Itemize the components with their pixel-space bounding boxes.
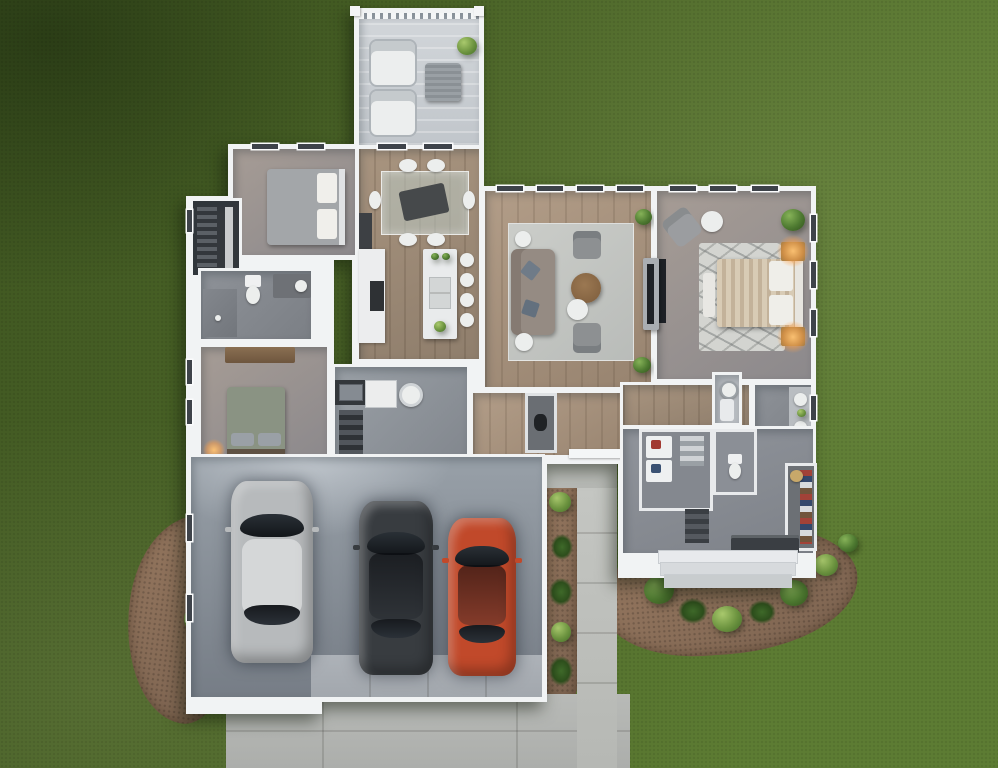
bar-stool [460,253,474,267]
potted-plant [457,37,477,55]
room-water-heater [712,372,742,426]
water-heater-body [720,399,734,421]
lounge-chair [369,39,417,87]
bar-stool [460,293,474,307]
car-windshield [367,532,425,555]
side-table [515,231,531,247]
kitchen-island [423,249,457,339]
car-roof [369,553,422,619]
slab-garage-stub [186,698,322,714]
island-plant [434,321,446,332]
bed-pillows [317,173,337,203]
range-counter [359,249,385,343]
room-patio [356,10,482,148]
tv-screen [647,264,654,324]
room-living [482,188,654,390]
window [187,400,192,424]
island-sink [429,277,451,309]
island-plant [431,253,439,260]
patio-post [350,6,360,16]
bed-pillows [317,209,337,239]
lamp-glow [777,321,809,353]
car-roof [458,565,507,625]
laundry-shelf [680,436,704,466]
window [187,210,192,232]
storage-basket [790,470,803,482]
car-windshield [455,546,508,567]
window [252,144,278,149]
dresser [225,347,295,363]
nesting-table [567,299,588,320]
floor-plan-render [0,0,998,768]
window [424,144,452,149]
dining-chair [369,191,381,209]
dining-chair [427,159,445,172]
hall-closet [525,393,557,453]
car-windshield [240,514,304,538]
room-bedroom-3 [198,344,330,460]
room-closet-2 [190,198,242,278]
vent-fan [399,383,423,407]
window [752,186,778,191]
armchair [573,231,601,259]
throw-pillow [520,260,541,281]
bed [227,387,285,455]
utility-sink [339,384,363,401]
laundry-basket-blue [651,464,661,473]
window [187,595,192,621]
potted-plant [635,209,652,225]
window [537,186,563,191]
bar-stool [460,313,474,327]
window [378,144,406,149]
laundry-basket-red [651,440,661,449]
cooktop [370,281,384,311]
armchair [573,323,601,353]
linen-shelves [339,410,363,456]
house [0,0,998,768]
car-red-sedan [448,518,516,676]
toilet-bowl [246,286,260,304]
window [811,310,816,336]
room-bedroom-2 [230,146,358,258]
car-silver-wagon [231,481,313,663]
utility-counter [335,380,365,405]
room-laundry [332,364,470,460]
toilet-bowl [729,463,741,479]
bed [717,259,801,327]
laundry-room [639,429,713,511]
bed [267,169,345,245]
sofa [511,249,555,335]
shower [203,289,237,337]
dining-chair [399,233,417,246]
tv-console [643,258,659,330]
headboard [339,169,345,245]
dining-chair [399,159,417,172]
bed-pillows [231,433,254,446]
wc-room [713,429,757,495]
headboard [795,257,803,329]
vanity-sink [295,280,307,292]
bed-pillows [258,433,281,446]
window [617,186,643,191]
car-rear-window [459,625,505,642]
window [298,144,324,149]
clothes-shelves [800,470,812,544]
hanging-clothes [197,207,217,269]
car-charcoal-sedan [359,501,433,675]
vanity-sink [794,393,807,406]
armchair [660,205,703,249]
pantry-fridge [359,213,372,249]
side-table [515,333,533,351]
room-mudroom [620,426,816,556]
dining-chair [427,233,445,246]
window [710,186,736,191]
room-garage [188,454,545,700]
car-rear-window [244,605,300,625]
lounge-chair [369,89,417,137]
patio-post [474,6,484,16]
potted-plant [633,357,651,373]
island-plant [442,253,450,260]
window [811,262,816,288]
closet-shelf [225,207,233,269]
patio-railing [359,13,479,19]
dining-chair [463,191,475,209]
outdoor-table [425,63,461,101]
bar-stool [460,273,474,287]
shoe-shelf [685,509,709,543]
window [497,186,523,191]
room-kitchen-dining [356,146,482,362]
lamp-glow [777,235,809,267]
potted-plant [781,209,805,231]
room-master-bedroom [654,188,814,382]
window [811,215,816,241]
room-hall-bathroom [198,268,314,342]
water-heater-unit [720,381,738,399]
vanity-plant [797,409,806,417]
entry-landing [664,574,792,588]
vanity [273,274,311,298]
throw-pillow [521,299,540,318]
ottoman [701,211,723,232]
sink-divider [430,292,450,294]
washer [365,380,397,408]
window [187,515,192,541]
window [187,360,192,384]
window [670,186,696,191]
window [577,186,603,191]
shower-drain [215,315,221,321]
car-rear-window [371,619,421,638]
closet-item [534,414,547,431]
window [811,396,816,420]
foot-bench [703,273,715,317]
